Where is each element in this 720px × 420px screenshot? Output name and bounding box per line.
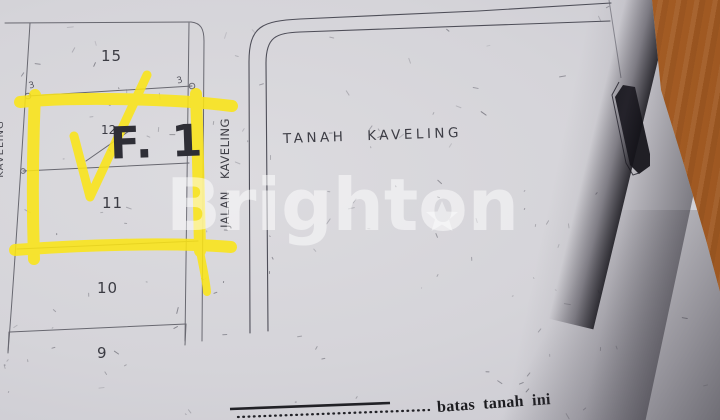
watermark-text-part1: Bright — [166, 163, 418, 247]
star-shape — [426, 201, 458, 231]
plot-number-10: 10 — [97, 281, 118, 296]
plot-number-11: 11 — [102, 196, 123, 211]
plot-number-15: 15 — [101, 49, 122, 64]
unit-label-f1: F. 1 — [109, 119, 205, 166]
edge-road-label-fragment: KAVELING — [0, 106, 8, 192]
highlight-left-stroke — [33, 95, 35, 259]
highlight-right-tail — [200, 251, 207, 292]
star-icon — [423, 199, 461, 237]
plot-number-9: 9 — [97, 346, 108, 361]
watermark-text-part2: n — [468, 163, 519, 247]
brighton-watermark: Brighto n — [166, 169, 519, 241]
photo-of-site-plan: 15 12 11 10 9 F. 1 3 3 JALAN KAVELING KA… — [0, 0, 720, 420]
watermark-o: o — [418, 169, 467, 241]
